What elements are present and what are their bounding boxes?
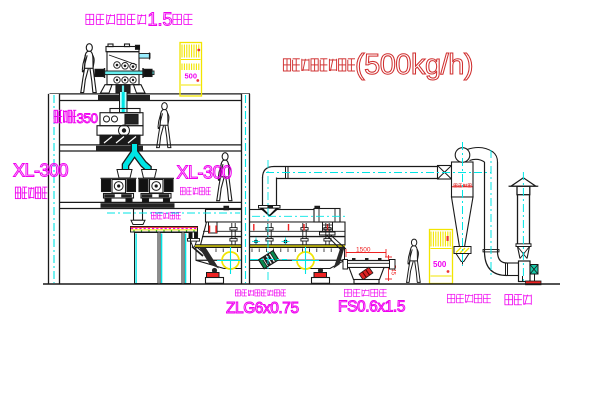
svg-text:XL-300: XL-300 [13, 161, 69, 181]
svg-text:1500: 1500 [356, 247, 371, 254]
svg-text:350: 350 [77, 111, 98, 126]
svg-text:500: 500 [433, 260, 447, 269]
svg-text:(500kg/h): (500kg/h) [355, 49, 473, 81]
svg-text:FS0.6x1.5: FS0.6x1.5 [338, 299, 405, 316]
svg-text:1.5: 1.5 [148, 10, 173, 30]
svg-text:ZLG6x0.75: ZLG6x0.75 [226, 300, 299, 317]
svg-text:500: 500 [185, 72, 198, 81]
svg-text:XL-300: XL-300 [177, 163, 233, 183]
